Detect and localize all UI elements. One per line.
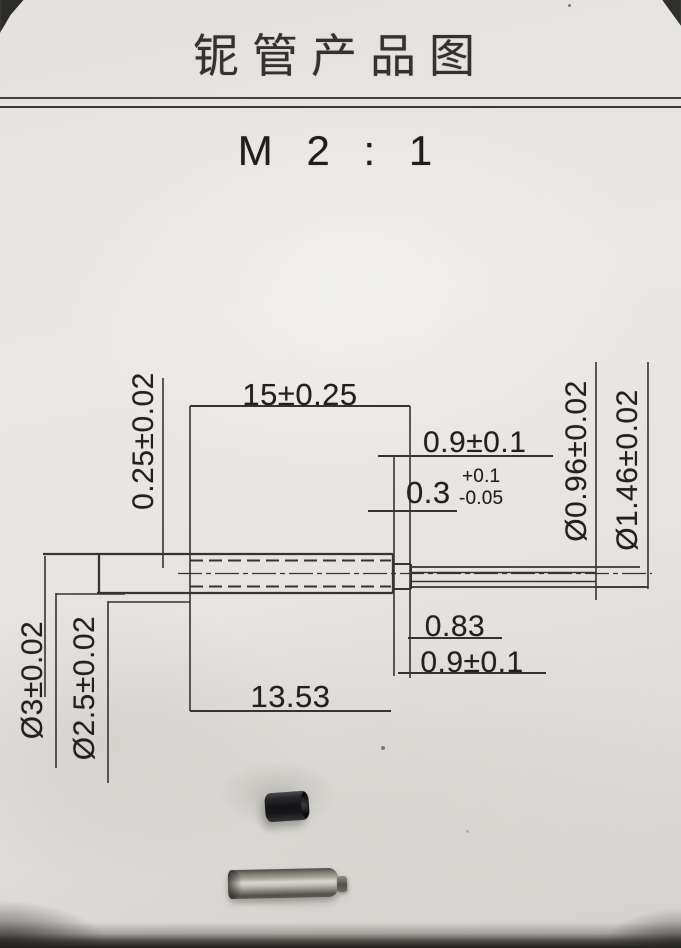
drawing-sheet: 铌管产品图 M 2 : 1 15±0.25 0.9±0.1 0.3 +0.1 -… [0,0,681,948]
photo-black-tube [264,791,310,823]
dim-overall-length: 15±0.25 [190,377,410,413]
dust-speck [466,830,469,833]
dim-tip-length-bottom: 0.9±0.1 [398,646,546,680]
dim-step-tolerance-plus: +0.1 [462,466,500,488]
dim-step-length: 0.83 [408,610,502,644]
dim-outer-diameter: Ø3±0.02 [17,580,49,780]
dim-step-nominal: 0.3 [406,475,451,511]
tip-tube-outer [411,567,648,587]
dim-tip-length-top: 0.9±0.1 [423,426,526,460]
dim-bore-diameter: Ø2.5±0.02 [69,588,101,788]
dim-step-tolerance-minus: -0.05 [459,488,503,510]
dim-wall-thickness: 0.25±0.02 [128,341,160,541]
dust-speck [381,746,385,750]
tip-collar [393,564,411,589]
dust-speck [568,4,571,7]
dim-bore-depth: 13.53 [190,679,391,715]
dim-tip-inner-diameter: Ø0.96±0.02 [561,361,593,561]
photo-metal-pin [228,868,340,900]
dim-tip-outer-diameter: Ø1.46±0.02 [612,370,644,570]
photo-pin-tip-nub [337,876,348,892]
